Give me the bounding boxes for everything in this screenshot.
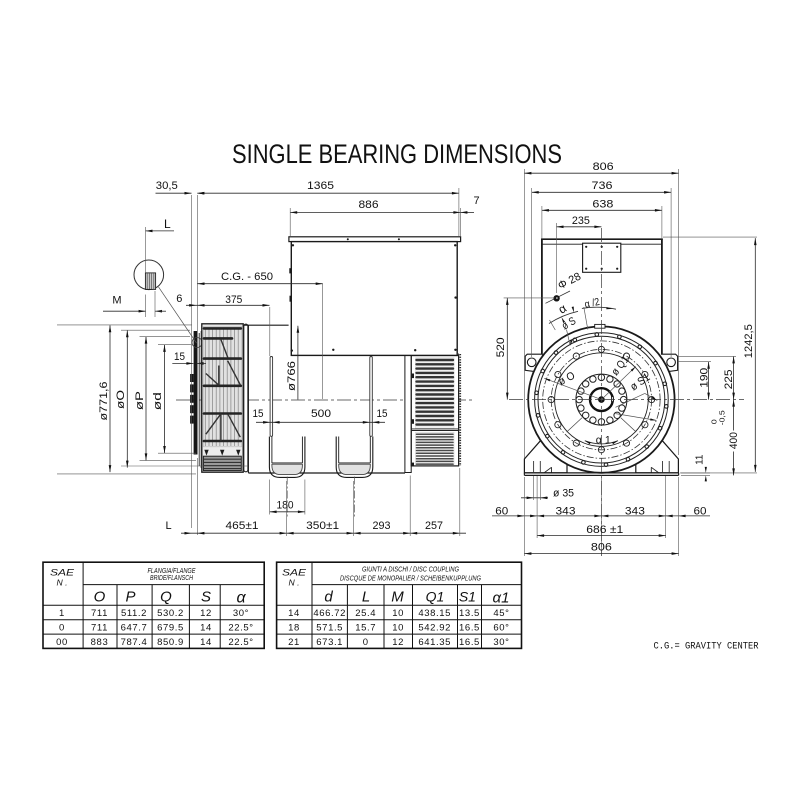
svg-text:L: L	[164, 217, 171, 231]
svg-text:22.5°: 22.5°	[228, 637, 253, 648]
svg-text:Q1: Q1	[426, 589, 445, 605]
svg-text:M: M	[391, 589, 404, 606]
svg-text:SAE: SAE	[50, 568, 75, 578]
svg-text:736: 736	[592, 180, 613, 192]
svg-text:638: 638	[592, 199, 613, 211]
svg-text:235: 235	[572, 215, 590, 227]
svg-text:30°: 30°	[233, 608, 249, 619]
svg-text:14: 14	[288, 608, 300, 619]
svg-text:438.15: 438.15	[418, 608, 451, 619]
svg-text:BRIDE/FLANSCH: BRIDE/FLANSCH	[150, 573, 193, 582]
svg-text:L: L	[165, 520, 171, 532]
svg-text:60°: 60°	[493, 622, 509, 633]
svg-text:L: L	[362, 589, 370, 606]
svg-text:ø 35: ø 35	[553, 488, 574, 500]
svg-text:806: 806	[591, 541, 612, 553]
svg-text:ø771,6: ø771,6	[98, 382, 110, 421]
svg-text:787.4: 787.4	[121, 637, 148, 648]
svg-text:øP: øP	[134, 391, 146, 410]
svg-text:15: 15	[174, 351, 185, 363]
svg-text:465±1: 465±1	[226, 520, 259, 532]
svg-text:S1: S1	[459, 589, 476, 605]
svg-text:SINGLE BEARING DIMENSIONS: SINGLE BEARING DIMENSIONS	[232, 139, 562, 169]
svg-text:21: 21	[288, 637, 300, 648]
svg-text:O: O	[94, 589, 106, 606]
svg-text:45°: 45°	[493, 608, 509, 619]
svg-text:N .: N .	[289, 579, 300, 588]
svg-text:673.1: 673.1	[316, 637, 343, 648]
svg-text:α1: α1	[493, 590, 510, 607]
svg-text:350±1: 350±1	[306, 520, 339, 532]
svg-text:1: 1	[59, 608, 65, 619]
svg-text:257: 257	[425, 520, 443, 532]
svg-text:647.7: 647.7	[121, 622, 148, 633]
svg-text:α: α	[236, 590, 246, 607]
svg-text:11: 11	[695, 454, 706, 465]
svg-text:1365: 1365	[307, 180, 334, 192]
svg-text:571.5: 571.5	[316, 622, 343, 633]
svg-text:190: 190	[698, 368, 710, 388]
svg-text:850.9: 850.9	[157, 637, 184, 648]
svg-text:400: 400	[728, 432, 740, 449]
svg-text:13.5: 13.5	[459, 608, 480, 619]
svg-text:00: 00	[56, 637, 68, 648]
svg-text:500: 500	[311, 408, 331, 420]
svg-text:10: 10	[392, 608, 404, 619]
svg-text:14: 14	[200, 637, 212, 648]
svg-text:30,5: 30,5	[156, 180, 178, 192]
svg-text:883: 883	[91, 637, 109, 648]
svg-text:293: 293	[373, 520, 391, 532]
svg-text:511.2: 511.2	[121, 608, 147, 619]
svg-text:d: d	[324, 589, 333, 606]
svg-text:375: 375	[225, 294, 242, 306]
svg-text:15.7: 15.7	[355, 622, 376, 633]
svg-text:466.72: 466.72	[313, 608, 346, 619]
svg-text:686 ±1: 686 ±1	[586, 524, 623, 536]
svg-text:7: 7	[473, 195, 479, 207]
svg-text:542.92: 542.92	[418, 622, 451, 633]
svg-text:18: 18	[288, 622, 300, 633]
svg-text:C.G. - 650: C.G. - 650	[221, 271, 273, 283]
svg-text:520: 520	[495, 337, 507, 357]
svg-text:ød: ød	[152, 392, 164, 410]
svg-text:SAE: SAE	[282, 568, 307, 578]
svg-text:711: 711	[91, 608, 108, 619]
svg-text:25.4: 25.4	[355, 608, 376, 619]
svg-text:806: 806	[593, 161, 614, 173]
svg-text:711: 711	[91, 622, 108, 633]
svg-text:15: 15	[253, 408, 264, 420]
svg-text:S: S	[201, 589, 211, 606]
svg-text:DISCQUE DE MONOPALIER / SCHEIB: DISCQUE DE MONOPALIER / SCHEIBENKUPPLUNG	[340, 573, 481, 582]
svg-text:ø766: ø766	[286, 361, 298, 391]
svg-text:16.5: 16.5	[459, 637, 480, 648]
svg-text:15: 15	[377, 408, 388, 420]
svg-text:P: P	[125, 589, 135, 606]
svg-text:6: 6	[176, 293, 182, 305]
svg-text:GIUNTI A DISCHI / DISC COUPLIN: GIUNTI A DISCHI / DISC COUPLING	[362, 564, 459, 573]
svg-text:530.2: 530.2	[157, 608, 184, 619]
svg-text:0: 0	[363, 637, 369, 648]
svg-text:30°: 30°	[493, 637, 509, 648]
svg-text:0: 0	[59, 622, 65, 633]
svg-text:10: 10	[392, 622, 404, 633]
svg-text:N .: N .	[57, 579, 68, 588]
svg-text:22.5°: 22.5°	[228, 622, 253, 633]
svg-text:225: 225	[723, 369, 735, 389]
svg-text:1242,5: 1242,5	[743, 324, 755, 358]
svg-text:679.5: 679.5	[157, 622, 184, 633]
svg-text:14: 14	[200, 622, 212, 633]
svg-text:641.35: 641.35	[418, 637, 451, 648]
svg-text:øO: øO	[115, 389, 127, 409]
svg-text:M: M	[112, 295, 121, 307]
svg-text:12: 12	[200, 608, 212, 619]
svg-text:180: 180	[277, 500, 294, 512]
svg-text:Q: Q	[160, 589, 172, 606]
svg-text:16.5: 16.5	[459, 622, 480, 633]
svg-text:-0,5: -0,5	[718, 410, 727, 425]
svg-text:886: 886	[359, 199, 379, 211]
svg-text:12: 12	[392, 637, 404, 648]
svg-text:C.G.= GRAVITY CENTER: C.G.= GRAVITY CENTER	[654, 641, 759, 652]
svg-text:α 1: α 1	[596, 435, 611, 447]
